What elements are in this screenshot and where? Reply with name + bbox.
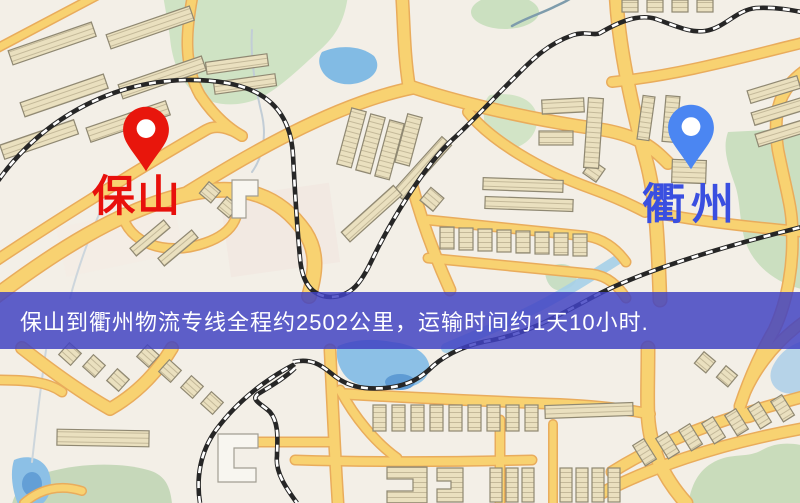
- map-screenshot: 保山 衢州 保山到衢州物流专线全程约2502公里，运输时间约1天10小时.: [0, 0, 800, 503]
- info-banner-text: 保山到衢州物流专线全程约2502公里，运输时间约1天10小时.: [0, 305, 649, 337]
- origin-pin-icon[interactable]: [121, 105, 171, 173]
- map-background: [0, 0, 800, 503]
- origin-city-label: 保山: [92, 176, 182, 219]
- info-banner: 保山到衢州物流专线全程约2502公里，运输时间约1天10小时.: [0, 292, 800, 349]
- destination-city-label: 衢州: [642, 184, 740, 227]
- destination-pin-icon[interactable]: [666, 103, 716, 171]
